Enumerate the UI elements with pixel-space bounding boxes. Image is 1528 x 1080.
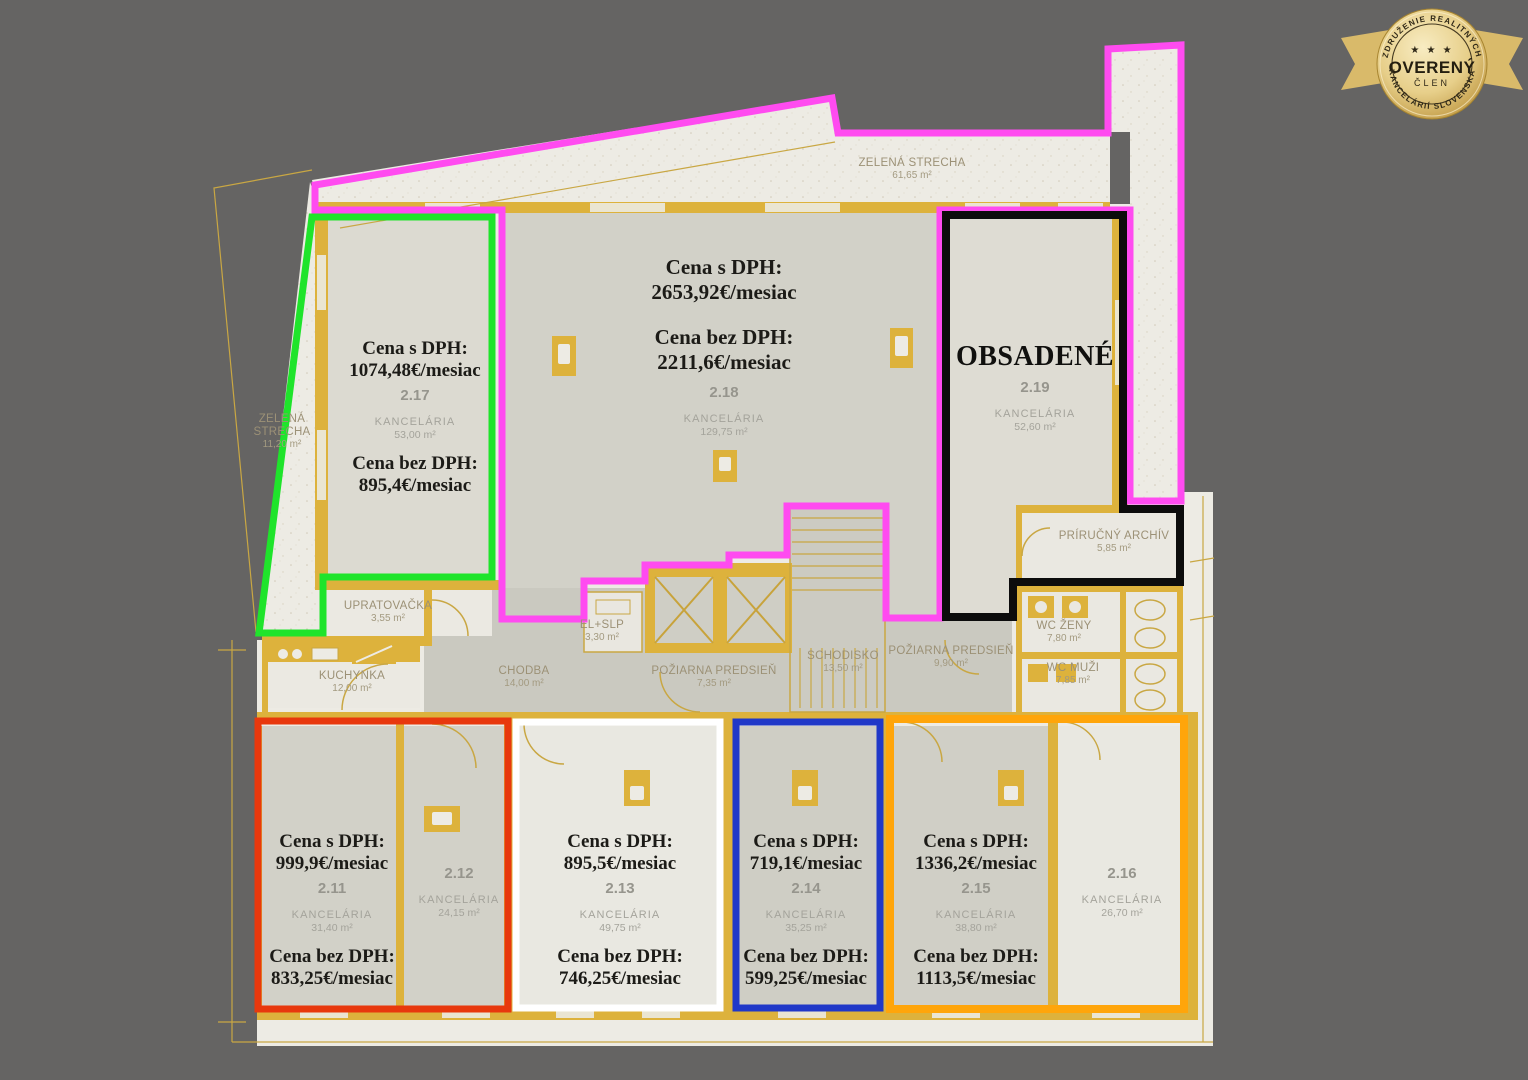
price-with-vat-label: Cena s DPH: <box>349 338 480 360</box>
room-label-roof-left: ZELENÁ STRECHA 11,20 m² <box>253 413 310 451</box>
price-with-vat-value: 719,1€/mesiac <box>743 853 869 875</box>
room-label-wc-zeny: WC ŽENY 7,80 m² <box>1036 620 1091 645</box>
price-without-vat-label: Cena bez DPH: <box>269 946 395 968</box>
unit-type: KANCELÁRIA <box>349 416 480 429</box>
unit-type: KANCELÁRIA <box>419 894 500 907</box>
price-without-vat-label: Cena bez DPH: <box>913 946 1039 968</box>
badge-title: OVERENÝ <box>1389 58 1476 77</box>
room-name: KUCHYNKA <box>319 670 385 683</box>
room-area: 13,50 m² <box>807 663 879 675</box>
unit-number: 2.16 <box>1082 866 1163 882</box>
price-with-vat-label: Cena s DPH: <box>743 831 869 853</box>
room-area: 3,55 m² <box>344 613 432 625</box>
room-label-archiv: PRÍRUČNÝ ARCHÍV 5,85 m² <box>1059 530 1170 555</box>
badge-stars: ★ ★ ★ <box>1410 45 1453 56</box>
room-label-wc-muzi: WC MUŽI 7,85 m² <box>1047 662 1100 687</box>
unit-number: 2.15 <box>913 881 1039 897</box>
unit-label-2-14: Cena s DPH: 719,1€/mesiac 2.14 KANCELÁRI… <box>743 831 869 990</box>
unit-number: 2.19 <box>956 380 1114 396</box>
room-area: 12,00 m² <box>319 683 385 695</box>
price-with-vat-label: Cena s DPH: <box>269 831 395 853</box>
room-area: 9,90 m² <box>888 658 1013 670</box>
price-with-vat-value: 895,5€/mesiac <box>557 853 683 875</box>
room-label-upratovacka: UPRATOVAČKA 3,55 m² <box>344 600 432 625</box>
price-without-vat-label: Cena bez DPH: <box>743 946 869 968</box>
occupied-status: OBSADENÉ <box>956 341 1114 372</box>
room-label-chodba: CHODBA 14,00 m² <box>498 665 549 690</box>
price-without-vat-value: 1113,5€/mesiac <box>913 968 1039 990</box>
unit-area: 49,75 m² <box>557 922 683 934</box>
price-without-vat-value: 895,4€/mesiac <box>349 475 480 497</box>
unit-label-2-15: Cena s DPH: 1336,2€/mesiac 2.15 KANCELÁR… <box>913 831 1039 990</box>
floor-plan-page: ZELENÁ STRECHA 61,65 m² ZELENÁ STRECHA 1… <box>0 0 1528 1080</box>
unit-number: 2.14 <box>743 881 869 897</box>
price-without-vat-value: 746,25€/mesiac <box>557 968 683 990</box>
price-with-vat-value: 1074,48€/mesiac <box>349 360 480 382</box>
price-without-vat-label: Cena bez DPH: <box>557 946 683 968</box>
room-name: ZELENÁ STRECHA <box>858 157 965 170</box>
verified-member-badge: ZDRUŽENIE REALITNÝCH ★ ★ ★ OVERENÝ ČLEN … <box>1337 2 1527 128</box>
unit-label-2-17: Cena s DPH: 1074,48€/mesiac 2.17 KANCELÁ… <box>349 338 480 497</box>
unit-type: KANCELÁRIA <box>913 909 1039 922</box>
unit-label-2-18: Cena s DPH: 2653,92€/mesiac Cena bez DPH… <box>651 255 796 438</box>
room-area: 7,80 m² <box>1036 633 1091 645</box>
price-without-vat-label: Cena bez DPH: <box>349 453 480 475</box>
unit-area: 53,00 m² <box>349 429 480 441</box>
room-name: WC ŽENY <box>1036 620 1091 633</box>
price-with-vat-value: 1336,2€/mesiac <box>913 853 1039 875</box>
unit-type: KANCELÁRIA <box>651 413 796 426</box>
room-area: 5,85 m² <box>1059 543 1170 555</box>
unit-area: 38,80 m² <box>913 922 1039 934</box>
unit-label-2-11: Cena s DPH: 999,9€/mesiac 2.11 KANCELÁRI… <box>269 831 395 990</box>
room-name: EL+SLP <box>580 619 624 632</box>
room-name: STRECHA <box>253 426 310 439</box>
unit-label-2-19: OBSADENÉ 2.19 KANCELÁRIA 52,60 m² <box>956 341 1114 433</box>
room-label-kuchynka: KUCHYNKA 12,00 m² <box>319 670 385 695</box>
room-name: ZELENÁ <box>253 413 310 426</box>
unit-area: 24,15 m² <box>419 907 500 919</box>
room-name: POŽIARNA PREDSIEŇ <box>651 665 776 678</box>
unit-number: 2.12 <box>419 866 500 882</box>
unit-area: 26,70 m² <box>1082 907 1163 919</box>
unit-number: 2.18 <box>651 385 796 401</box>
room-area: 61,65 m² <box>858 170 965 182</box>
room-area: 7,35 m² <box>651 678 776 690</box>
price-with-vat-label: Cena s DPH: <box>557 831 683 853</box>
unit-label-2-13: Cena s DPH: 895,5€/mesiac 2.13 KANCELÁRI… <box>557 831 683 990</box>
badge-member: ČLEN <box>1414 78 1450 88</box>
room-name: SCHODISKO <box>807 650 879 663</box>
room-name: UPRATOVAČKA <box>344 600 432 613</box>
unit-number: 2.17 <box>349 388 480 404</box>
price-with-vat-label: Cena s DPH: <box>913 831 1039 853</box>
price-without-vat-value: 599,25€/mesiac <box>743 968 869 990</box>
room-name: CHODBA <box>498 665 549 678</box>
unit-area: 52,60 m² <box>956 421 1114 433</box>
unit-type: KANCELÁRIA <box>956 408 1114 421</box>
unit-type: KANCELÁRIA <box>269 909 395 922</box>
price-with-vat-label: Cena s DPH: <box>651 255 796 280</box>
unit-area: 35,25 m² <box>743 922 869 934</box>
unit-label-2-16: 2.16 KANCELÁRIA 26,70 m² <box>1082 866 1163 919</box>
unit-type: KANCELÁRIA <box>743 909 869 922</box>
room-label-poziarna-predsien-1: POŽIARNA PREDSIEŇ 7,35 m² <box>651 665 776 690</box>
unit-type: KANCELÁRIA <box>557 909 683 922</box>
price-with-vat-value: 2653,92€/mesiac <box>651 280 796 305</box>
price-with-vat-value: 999,9€/mesiac <box>269 853 395 875</box>
unit-area: 129,75 m² <box>651 426 796 438</box>
room-area: 7,85 m² <box>1047 675 1100 687</box>
unit-type: KANCELÁRIA <box>1082 894 1163 907</box>
room-area: 3,30 m² <box>580 632 624 644</box>
room-label-el-slp: EL+SLP 3,30 m² <box>580 619 624 644</box>
unit-label-2-12: 2.12 KANCELÁRIA 24,15 m² <box>419 866 500 919</box>
price-without-vat-label: Cena bez DPH: <box>651 325 796 350</box>
price-without-vat-value: 833,25€/mesiac <box>269 968 395 990</box>
room-label-poziarna-predsien-2: POŽIARNA PREDSIEŇ 9,90 m² <box>888 645 1013 670</box>
unit-area: 31,40 m² <box>269 922 395 934</box>
room-label-schodisko: SCHODISKO 13,50 m² <box>807 650 879 675</box>
room-label-roof-top: ZELENÁ STRECHA 61,65 m² <box>858 157 965 182</box>
room-name: PRÍRUČNÝ ARCHÍV <box>1059 530 1170 543</box>
room-area: 11,20 m² <box>253 439 310 451</box>
unit-number: 2.13 <box>557 881 683 897</box>
room-name: POŽIARNA PREDSIEŇ <box>888 645 1013 658</box>
unit-number: 2.11 <box>269 881 395 897</box>
room-name: WC MUŽI <box>1047 662 1100 675</box>
room-area: 14,00 m² <box>498 678 549 690</box>
price-without-vat-value: 2211,6€/mesiac <box>651 350 796 375</box>
